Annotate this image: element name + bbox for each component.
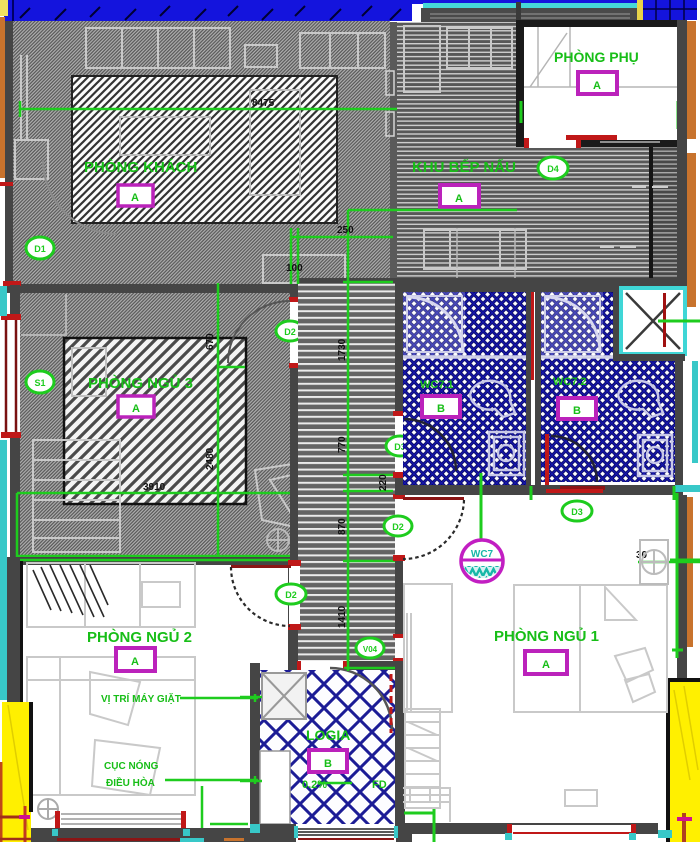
svg-text:D2: D2 — [392, 522, 404, 532]
svg-text:PHÒNG KHÁCH: PHÒNG KHÁCH — [84, 158, 197, 176]
svg-text:ĐIỀU HÒA: ĐIỀU HÒA — [106, 776, 155, 789]
svg-text:A: A — [131, 192, 139, 204]
svg-text:670: 670 — [205, 333, 216, 350]
svg-text:0.2%: 0.2% — [302, 779, 327, 791]
svg-text:PHÒNG NGỦ 3: PHÒNG NGỦ 3 — [88, 374, 193, 392]
svg-text:1410: 1410 — [337, 605, 348, 628]
svg-text:PHÒNG PHỤ: PHÒNG PHỤ — [554, 48, 639, 65]
svg-text:3910: 3910 — [143, 482, 166, 493]
svg-text:D2: D2 — [285, 590, 297, 600]
svg-text:FD: FD — [372, 779, 387, 791]
svg-text:VỊ TRÍ MÁY GIẶT: VỊ TRÍ MÁY GIẶT — [101, 692, 181, 705]
svg-text:PHÒNG NGỦ 1: PHÒNG NGỦ 1 — [494, 627, 599, 645]
svg-text:B: B — [324, 758, 332, 770]
svg-text:250: 250 — [337, 225, 354, 236]
svg-text:S1: S1 — [34, 378, 45, 388]
svg-text:770: 770 — [337, 436, 348, 453]
svg-text:A: A — [593, 80, 601, 92]
svg-text:B: B — [573, 405, 581, 417]
svg-text:870: 870 — [337, 518, 348, 535]
svg-text:D4: D4 — [547, 164, 559, 174]
svg-text:WC7: WC7 — [471, 549, 494, 560]
svg-text:A: A — [455, 193, 463, 205]
svg-text:PHÒNG NGỦ 2: PHÒNG NGỦ 2 — [87, 628, 192, 646]
svg-text:1730: 1730 — [337, 338, 348, 361]
svg-text:A: A — [132, 403, 140, 415]
svg-text:220: 220 — [378, 474, 389, 491]
svg-text:D2: D2 — [284, 327, 296, 337]
svg-text:WC7.2: WC7.2 — [553, 376, 587, 388]
svg-text:D1: D1 — [34, 244, 46, 254]
svg-text:CỤC NÓNG: CỤC NÓNG — [104, 759, 159, 772]
svg-text:A: A — [131, 656, 139, 668]
svg-text:KHU BẾP NẤU: KHU BẾP NẤU — [412, 159, 516, 176]
svg-text:V04: V04 — [363, 645, 378, 654]
svg-text:D3: D3 — [571, 507, 583, 517]
svg-text:A: A — [542, 659, 550, 671]
svg-text:100: 100 — [286, 263, 303, 274]
svg-text:8475: 8475 — [252, 98, 275, 109]
svg-text:2480: 2480 — [205, 447, 216, 470]
svg-text:LOGIA: LOGIA — [306, 727, 350, 743]
svg-text:WC7.1: WC7.1 — [420, 379, 454, 391]
svg-text:B: B — [437, 403, 445, 415]
